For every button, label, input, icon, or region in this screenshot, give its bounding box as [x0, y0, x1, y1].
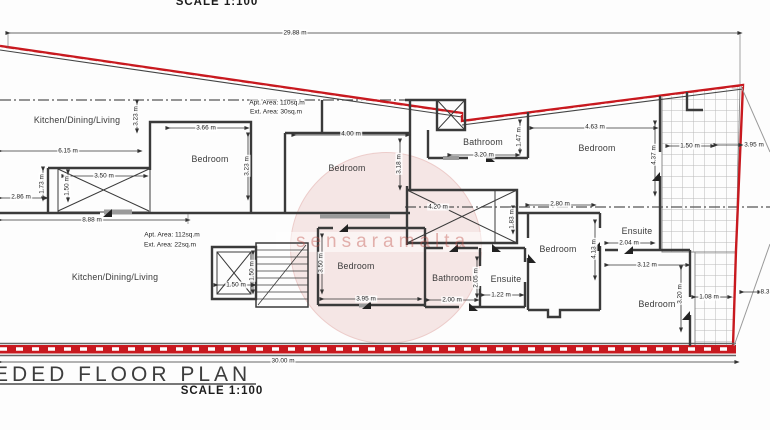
room-label: Bathroom — [432, 273, 472, 283]
dim-label: 3.66 m — [195, 125, 217, 132]
dim-label: 30.00 m — [270, 358, 295, 365]
dim-label: 2.80 m — [549, 201, 571, 208]
dim-label: 3.95 m — [743, 142, 765, 149]
dim-label: 2.04 m — [618, 240, 640, 247]
room-label: Bedroom — [638, 299, 675, 309]
dim-label: 4.63 m — [584, 124, 606, 131]
dim-label: 3.50 m — [93, 173, 115, 180]
dim-label: 3.50 m — [318, 252, 325, 274]
dim-label: 3.18 m — [396, 153, 403, 175]
site-boundary — [0, 46, 770, 356]
floor-plan-page: SCALE 1:100 sensaramalta — [0, 0, 770, 430]
scale-label-top: SCALE 1:100 — [176, 0, 259, 8]
dim-label: 1.50 m — [679, 143, 701, 150]
dim-label: 1.73 m — [39, 173, 46, 195]
dim-label: 1.50 m — [225, 282, 247, 289]
dim-label: 8.3 — [760, 289, 770, 296]
dim-label: 8.88 m — [81, 217, 103, 224]
room-label: Bedroom — [337, 261, 374, 271]
dim-label: 3.23 m — [133, 105, 140, 127]
dim-label: 4.00 m — [340, 131, 362, 138]
dim-label: 3.23 m — [244, 155, 251, 177]
room-label: Bathroom — [463, 137, 503, 147]
room-label: Ensuite — [491, 274, 522, 284]
dim-label: 29.88 m — [282, 30, 307, 37]
dim-label: 3.95 m — [355, 296, 377, 303]
dim-label: 3.12 m — [636, 262, 658, 269]
dim-label: 1.22 m — [490, 292, 512, 299]
area-note: Ext. Area: 30sq.m — [250, 108, 302, 116]
dim-label: 1.50 m — [249, 260, 256, 282]
dim-label: 4.13 m — [591, 238, 598, 260]
room-label: Kitchen/Dining/Living — [72, 272, 158, 282]
dim-label: 1.83 m — [509, 208, 516, 230]
area-note: Apt. Area: 112sq.m — [144, 231, 200, 239]
dim-label: 4.37 m — [651, 144, 658, 166]
room-label: Ensuite — [622, 226, 653, 236]
dim-label: 1.47 m — [516, 126, 523, 148]
plan-title: EDED FLOOR PLAN — [0, 363, 251, 387]
scale-label-bottom: SCALE 1:100 — [181, 385, 264, 397]
dim-label: 2.05 m — [473, 267, 480, 289]
room-label: Bedroom — [328, 163, 365, 173]
watermark-text: sensaramalta — [296, 231, 470, 253]
dim-label: 4.20 m — [427, 204, 449, 211]
dim-label: 6.15 m — [57, 148, 79, 155]
room-label: Kitchen/Dining/Living — [34, 115, 120, 125]
dim-label: 3.20 m — [473, 152, 495, 159]
area-note: Apt. Area: 110sq.m — [249, 99, 305, 107]
area-note: Ext. Area: 22sq.m — [144, 241, 196, 249]
room-label: Bedroom — [539, 244, 576, 254]
room-label: Bedroom — [191, 154, 228, 164]
dim-label: 1.08 m — [698, 294, 720, 301]
dim-label: 2.00 m — [441, 297, 463, 304]
room-label: Bedroom — [578, 143, 615, 153]
dimension-lines — [0, 33, 760, 362]
dim-label: 1.50 m — [64, 175, 71, 197]
dim-label: 2.86 m — [10, 194, 32, 201]
dim-label: 3.20 m — [677, 283, 684, 305]
